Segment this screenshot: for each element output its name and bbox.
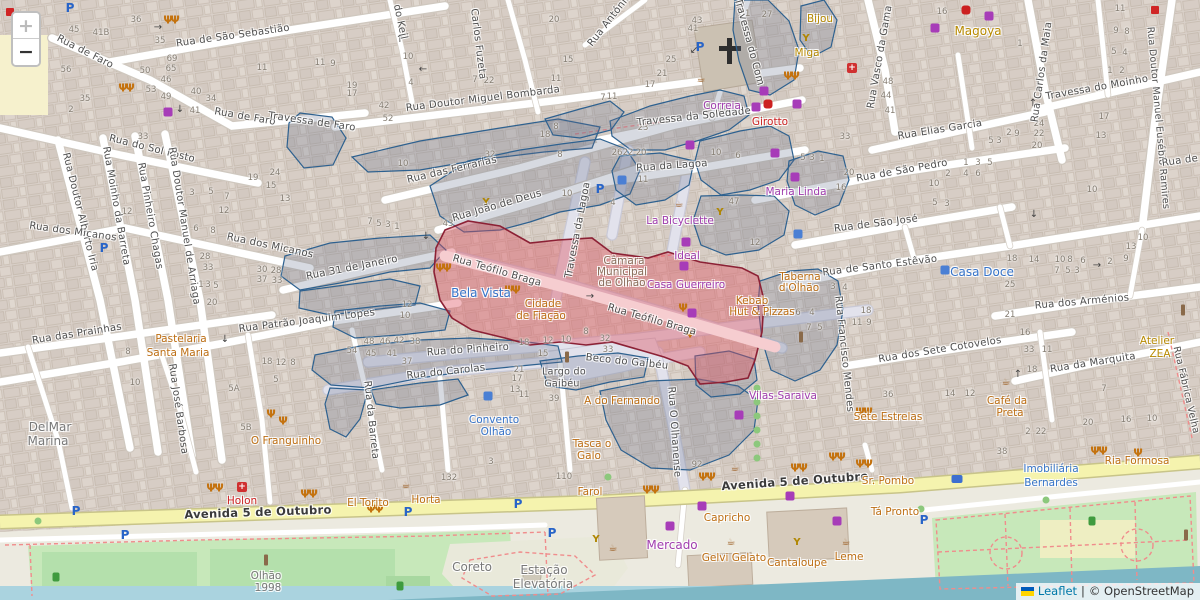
map-tiles — [0, 0, 1200, 600]
attribution-separator: | — [1081, 584, 1085, 598]
park-lawn — [1040, 520, 1135, 558]
zoom-control: + − — [11, 11, 41, 67]
coreto-bandstand — [523, 567, 541, 585]
zoom-out-button[interactable]: − — [13, 39, 39, 65]
ukraine-flag-icon — [1021, 587, 1034, 596]
leaflet-link[interactable]: Leaflet — [1038, 584, 1077, 598]
market-hall — [767, 508, 850, 562]
attribution-bar: Leaflet | © OpenStreetMap — [1016, 583, 1200, 600]
leaflet-map[interactable]: 4541B36356965465349505640344111352332010… — [0, 0, 1200, 600]
park-field — [210, 549, 395, 587]
market-hall — [596, 496, 647, 560]
station-building — [687, 552, 753, 587]
zoom-in-button[interactable]: + — [13, 13, 39, 39]
openstreetmap-link[interactable]: © OpenStreetMap — [1089, 584, 1194, 598]
